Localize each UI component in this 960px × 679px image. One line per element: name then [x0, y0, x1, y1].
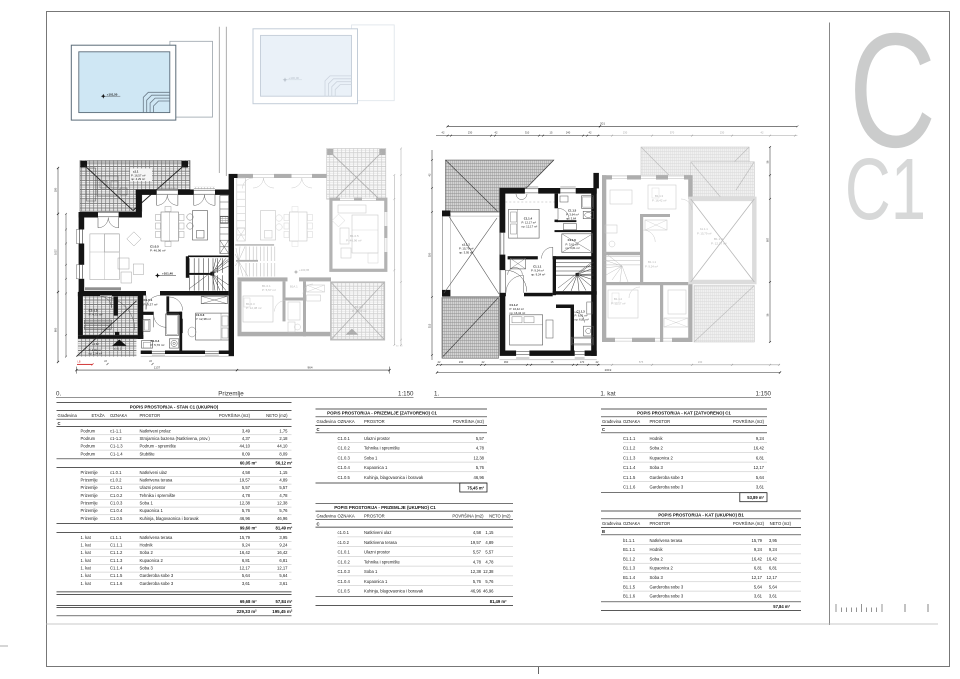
svg-text:1.: 1.: [434, 390, 439, 397]
svg-text:P: 12,17 m²: P: 12,17 m²: [611, 302, 626, 306]
svg-text:81,49 m²: 81,49 m²: [490, 599, 507, 604]
svg-text:57,84 m²: 57,84 m²: [276, 599, 293, 604]
svg-text:230: 230: [459, 360, 464, 364]
svg-text:4,37: 4,37: [242, 436, 251, 441]
svg-text:B1.1.2: B1.1.2: [614, 297, 623, 301]
svg-text:5,57: 5,57: [279, 485, 288, 490]
svg-text:1. kat: 1. kat: [600, 390, 615, 397]
svg-text:5,64: 5,64: [769, 584, 778, 589]
svg-text:Podrum - spremište: Podrum - spremište: [140, 444, 177, 449]
svg-text:3,61: 3,61: [756, 485, 765, 490]
svg-text:Kupaonica 2: Kupaonica 2: [140, 558, 164, 563]
svg-text:P: 19,57 m²: P: 19,57 m²: [352, 309, 367, 313]
svg-text:Tehnika i spremište: Tehnika i spremište: [364, 446, 401, 451]
svg-text:1,15: 1,15: [279, 470, 288, 475]
svg-text:c1-1.2: c1-1.2: [110, 436, 122, 441]
svg-text:np: 2,04 m²: np: 2,04 m²: [89, 351, 102, 355]
svg-text:6,81: 6,81: [242, 558, 251, 563]
svg-text:C1.1.4: C1.1.4: [110, 566, 123, 571]
svg-text:230: 230: [720, 131, 725, 135]
svg-text:LB: LB: [104, 360, 107, 363]
svg-text:np: 12,17 m²: np: 12,17 m²: [522, 224, 538, 228]
svg-text:c1.0.2: c1.0.2: [110, 478, 122, 483]
svg-text:PROSTOR: PROSTOR: [364, 514, 385, 519]
svg-text:C1.0.1: C1.0.1: [110, 485, 123, 490]
svg-text:Prizemlje: Prizemlje: [81, 493, 99, 498]
svg-text:+101,50: +101,50: [107, 92, 118, 96]
svg-text:Prizemlje: Prizemlje: [81, 501, 99, 506]
svg-text:195,45 m²: 195,45 m²: [272, 609, 293, 614]
svg-text:1137: 1137: [154, 365, 161, 369]
svg-text:Kupaonica 2: Kupaonica 2: [650, 566, 674, 571]
svg-text:575: 575: [639, 360, 644, 364]
svg-text:Kupaonica 2: Kupaonica 2: [650, 455, 674, 460]
svg-text:Prizemlje: Prizemlje: [81, 516, 99, 521]
svg-text:3,61: 3,61: [769, 594, 778, 599]
svg-text:Tehnika i spremište: Tehnika i spremište: [140, 493, 177, 498]
svg-text:Prizemlje: Prizemlje: [218, 390, 244, 397]
svg-text:230: 230: [698, 360, 703, 364]
svg-text:Tehnika i spremište: Tehnika i spremište: [364, 559, 401, 564]
svg-text:16,42: 16,42: [754, 446, 765, 451]
svg-text:b1.1.1: b1.1.1: [623, 538, 635, 543]
svg-text:201: 201: [600, 122, 605, 126]
svg-text:P: 16,42 m²: P: 16,42 m²: [652, 199, 667, 203]
svg-text:Hodnik: Hodnik: [650, 547, 664, 552]
svg-text:C1.1.5: C1.1.5: [623, 475, 636, 480]
svg-text:315: 315: [428, 323, 432, 328]
svg-text:B1.1.3: B1.1.3: [623, 566, 636, 571]
svg-text:57,84 m²: 57,84 m²: [773, 604, 790, 609]
svg-text:POPIS PROSTORIJA - STAN C1 (U: POPIS PROSTORIJA - STAN C1 (UKUPNO): [130, 404, 219, 409]
svg-text:OZNAKA: OZNAKA: [110, 413, 127, 418]
svg-text:C1.0.5: C1.0.5: [110, 516, 123, 521]
svg-text:12,38: 12,38: [240, 501, 251, 506]
svg-text:12,17: 12,17: [277, 566, 288, 571]
svg-text:46,96: 46,96: [471, 589, 482, 594]
svg-text:4,78: 4,78: [473, 559, 482, 564]
svg-text:P: 9,37 m²: P: 9,37 m²: [144, 302, 158, 306]
svg-text:350: 350: [428, 252, 432, 257]
svg-text:3,49: 3,49: [242, 428, 251, 433]
svg-text:180: 180: [54, 187, 58, 192]
svg-text:4,58: 4,58: [242, 470, 251, 475]
svg-text:75,45 m²: 75,45 m²: [467, 485, 484, 490]
svg-text:+1,62: +1,62: [92, 342, 99, 346]
svg-text:C1.0.4: C1.0.4: [338, 579, 351, 584]
svg-text:12,38: 12,38: [471, 569, 482, 574]
svg-text:PROSTOR: PROSTOR: [650, 419, 671, 424]
svg-text:5,76: 5,76: [473, 579, 482, 584]
svg-text:99,60 m²: 99,60 m²: [240, 526, 257, 531]
svg-text:OZNAKA: OZNAKA: [623, 419, 640, 424]
svg-text:P: 12,38 m²: P: 12,38 m²: [196, 317, 212, 321]
svg-text:B1.1.1: B1.1.1: [648, 260, 657, 264]
svg-text:Soba 3: Soba 3: [650, 465, 664, 470]
svg-text:B1.1.4: B1.1.4: [714, 237, 723, 241]
svg-text:Soba 2: Soba 2: [650, 556, 664, 561]
svg-text:5,57: 5,57: [485, 550, 494, 555]
svg-text:P: 5,76 m²: P: 5,76 m²: [151, 343, 165, 347]
svg-text:C1.1.3: C1.1.3: [110, 558, 123, 563]
svg-text:Ulazni prostor: Ulazni prostor: [140, 485, 166, 490]
svg-text:1. kat: 1. kat: [81, 558, 92, 563]
svg-text:B: B: [602, 529, 605, 534]
svg-text:6,81: 6,81: [756, 455, 765, 460]
svg-text:b1.1.1: b1.1.1: [700, 227, 708, 231]
svg-text:C1.0.2: C1.0.2: [338, 559, 351, 564]
svg-text:POPIS PROSTORIJA - PRIZEMLJE: POPIS PROSTORIJA - PRIZEMLJE (ZATVORENO)…: [327, 411, 437, 416]
svg-text:3,61: 3,61: [754, 594, 763, 599]
svg-text:Garderoba sobe 3: Garderoba sobe 3: [140, 581, 174, 586]
svg-text:5,57: 5,57: [242, 485, 251, 490]
svg-text:C1.1.2: C1.1.2: [623, 446, 636, 451]
svg-text:Soba 2: Soba 2: [140, 550, 154, 555]
svg-text:887: 887: [767, 237, 770, 242]
svg-text:OZNAKA: OZNAKA: [623, 521, 640, 526]
svg-text:1:150: 1:150: [398, 390, 414, 397]
svg-text:B1.1.6: B1.1.6: [623, 594, 636, 599]
svg-text:np: 4,29 m²: np: 4,29 m²: [131, 177, 145, 181]
svg-text:PROSTOR: PROSTOR: [650, 521, 671, 526]
svg-text:C1-1.3: C1-1.3: [110, 444, 123, 449]
svg-text:Garderoba sobe 3: Garderoba sobe 3: [650, 584, 684, 589]
svg-text:5,76: 5,76: [485, 579, 494, 584]
svg-text:1. kat: 1. kat: [81, 543, 92, 548]
svg-text:5,76: 5,76: [279, 508, 288, 513]
svg-text:16,42: 16,42: [752, 556, 763, 561]
svg-text:C1.1.1: C1.1.1: [110, 543, 123, 548]
svg-text:NETO (m2): NETO (m2): [770, 521, 792, 526]
svg-text:1. kat: 1. kat: [81, 566, 92, 571]
svg-text:np: 9,24 m²: np: 9,24 m²: [531, 272, 545, 276]
svg-text:12,17: 12,17: [754, 465, 765, 470]
svg-text:C: C: [317, 521, 320, 526]
svg-text:POPIS PROSTORIJA - PRIZEMLJE: POPIS PROSTORIJA - PRIZEMLJE (UKUPNO) C1: [334, 505, 436, 510]
svg-text:Stubište: Stubište: [140, 451, 156, 456]
svg-text:Garderoba sobe 3: Garderoba sobe 3: [650, 475, 684, 480]
svg-text:19,57: 19,57: [471, 540, 482, 545]
svg-text:2019: 2019: [605, 368, 612, 372]
svg-text:LB: LB: [78, 361, 81, 364]
svg-text:NETO (m2): NETO (m2): [489, 514, 511, 519]
svg-text:1,75: 1,75: [279, 428, 288, 433]
svg-text:Hodnik: Hodnik: [140, 543, 154, 548]
svg-text:Kuhinja, blagovaonica i borava: Kuhinja, blagovaonica i boravak: [140, 516, 200, 521]
svg-text:4,58: 4,58: [473, 530, 482, 535]
svg-text:230: 230: [623, 131, 628, 135]
svg-text:C1.1.6: C1.1.6: [110, 581, 123, 586]
svg-text:Prizemlje: Prizemlje: [81, 478, 99, 483]
svg-text:POVRŠINA (m2): POVRŠINA (m2): [452, 514, 484, 519]
svg-text:C1.0.1: C1.0.1: [338, 550, 351, 555]
svg-text:P: 5,57 m²: P: 5,57 m²: [262, 288, 276, 292]
svg-text:Natkrivena terasa: Natkrivena terasa: [364, 540, 397, 545]
svg-text:9,24: 9,24: [279, 543, 288, 548]
svg-text:Podrum: Podrum: [81, 436, 96, 441]
svg-text:P: 15,79 m²: P: 15,79 m²: [697, 232, 712, 236]
svg-text:c1.0.2: c1.0.2: [338, 540, 350, 545]
svg-text:4,78: 4,78: [242, 493, 251, 498]
svg-text:3,95: 3,95: [769, 538, 778, 543]
svg-text:C1.1.1: C1.1.1: [623, 436, 636, 441]
svg-text:Građevina: Građevina: [317, 514, 337, 519]
svg-text:C1.1.6: C1.1.6: [623, 485, 636, 490]
svg-text:3,61: 3,61: [242, 581, 251, 586]
svg-text:POVRŠINA (m2): POVRŠINA (m2): [453, 419, 485, 424]
svg-text:OZNAKA: OZNAKA: [338, 514, 355, 519]
svg-text:B1.0.5: B1.0.5: [350, 234, 359, 238]
svg-text:6,81: 6,81: [279, 558, 288, 563]
svg-text:12,17: 12,17: [752, 575, 763, 580]
svg-text:B1A.1: B1A.1: [290, 285, 298, 289]
svg-text:c1-1.1: c1-1.1: [110, 428, 122, 433]
svg-text:360: 360: [504, 360, 509, 364]
svg-text:Soba 1: Soba 1: [364, 569, 378, 574]
svg-text:C1-1.4: C1-1.4: [110, 451, 123, 456]
svg-text:5,57: 5,57: [473, 550, 482, 555]
svg-text:POVRŠINA (m2): POVRŠINA (m2): [733, 419, 765, 424]
svg-text:Građevina: Građevina: [602, 521, 622, 526]
svg-text:9,24: 9,24: [769, 547, 778, 552]
svg-text:69,68 m²: 69,68 m²: [240, 599, 257, 604]
svg-text:Kuhinja, blagovaonica i borava: Kuhinja, blagovaonica i boravak: [364, 475, 424, 480]
svg-text:6,81: 6,81: [769, 566, 778, 571]
svg-text:B1.1.1: B1.1.1: [623, 547, 636, 552]
svg-text:5,76: 5,76: [242, 508, 251, 513]
svg-text:6,81: 6,81: [754, 566, 763, 571]
svg-text:C1.0.3: C1.0.3: [338, 569, 351, 574]
svg-text:B1.1.5: B1.1.5: [623, 584, 636, 589]
svg-text:Građevina: Građevina: [58, 413, 78, 418]
svg-text:C: C: [317, 427, 320, 432]
svg-text:Strojarnica bazena (Natkrivena: Strojarnica bazena (Natkrivena, prov.): [140, 436, 211, 441]
svg-text:B1.1.2: B1.1.2: [623, 556, 636, 561]
svg-text:np: 3,64: np: 3,64: [566, 216, 577, 220]
svg-text:P: 4,75 m²: P: 4,75 m²: [89, 313, 103, 317]
svg-text:+101,40: +101,40: [162, 271, 173, 275]
svg-text:60,05 m²: 60,05 m²: [240, 461, 257, 466]
svg-text:5,64: 5,64: [756, 475, 765, 480]
svg-text:c1.0.1: c1.0.1: [110, 470, 122, 475]
svg-text:1. kat: 1. kat: [81, 550, 92, 555]
svg-text:C: C: [602, 427, 605, 432]
svg-text:LB: LB: [149, 360, 152, 363]
svg-text:16,42: 16,42: [767, 556, 778, 561]
svg-text:Soba 3: Soba 3: [140, 566, 154, 571]
svg-text:15,79: 15,79: [752, 538, 763, 543]
svg-text:3,61: 3,61: [279, 581, 288, 586]
svg-text:4,89: 4,89: [485, 540, 494, 545]
svg-text:C1.0.2: C1.0.2: [338, 446, 351, 451]
svg-text:0.: 0.: [56, 390, 61, 397]
svg-text:12,17: 12,17: [767, 575, 778, 580]
svg-text:Garderoba sobe 3: Garderoba sobe 3: [140, 573, 174, 578]
svg-text:9,24: 9,24: [242, 543, 251, 548]
svg-text:44,10: 44,10: [277, 444, 288, 449]
svg-text:570: 570: [670, 131, 675, 135]
svg-text:P: 9,24 m²: P: 9,24 m²: [645, 265, 658, 269]
svg-text:4,78: 4,78: [476, 446, 485, 451]
svg-text:16,42: 16,42: [277, 550, 288, 555]
svg-text:Podrum: Podrum: [81, 428, 96, 433]
svg-text:4,78: 4,78: [279, 493, 288, 498]
svg-text:1:150: 1:150: [756, 390, 772, 397]
svg-text:c1.1.1: c1.1.1: [110, 535, 122, 540]
svg-text:5,64: 5,64: [242, 573, 251, 578]
svg-text:170: 170: [580, 360, 585, 364]
svg-text:P: 46,96 m²: P: 46,96 m²: [150, 249, 166, 253]
svg-text:C1.0.5: C1.0.5: [338, 589, 351, 594]
svg-text:ETAŽA: ETAŽA: [92, 413, 105, 418]
svg-text:240: 240: [566, 131, 571, 135]
svg-text:np: 16,42 m²: np: 16,42 m²: [510, 311, 526, 315]
svg-text:OZNAKA: OZNAKA: [338, 419, 355, 424]
svg-text:C1.1.4: C1.1.4: [623, 465, 636, 470]
svg-text:Ulazni prostor: Ulazni prostor: [364, 436, 390, 441]
svg-text:+100,95: +100,95: [299, 268, 310, 272]
svg-text:46,96: 46,96: [483, 589, 494, 594]
svg-text:C1.0.2: C1.0.2: [110, 493, 123, 498]
svg-text:B1.1.3: B1.1.3: [655, 194, 664, 198]
svg-text:Građevina: Građevina: [602, 419, 622, 424]
svg-text:5,64: 5,64: [754, 584, 763, 589]
svg-text:P: 4,09 m²: P: 4,09 m²: [89, 348, 101, 352]
svg-text:C1.1.5: C1.1.5: [110, 573, 123, 578]
svg-text:16,42: 16,42: [240, 550, 251, 555]
svg-text:C: C: [58, 421, 61, 426]
svg-text:np: 3,61 m²: np: 3,61 m²: [566, 246, 580, 250]
svg-text:12,17: 12,17: [240, 566, 251, 571]
svg-text:15,79: 15,79: [240, 535, 251, 540]
svg-text:C1.1.3: C1.1.3: [623, 455, 636, 460]
svg-text:POVRŠINA (m2): POVRŠINA (m2): [219, 413, 251, 418]
svg-text:Natkriveni ulaz: Natkriveni ulaz: [364, 530, 391, 535]
svg-text:1. kat: 1. kat: [81, 581, 92, 586]
svg-text:C1.0.4: C1.0.4: [338, 465, 351, 470]
svg-text:964: 964: [307, 365, 312, 369]
svg-text:Soba 2: Soba 2: [650, 446, 664, 451]
svg-text:+100,00: +100,00: [289, 76, 300, 80]
svg-text:Natkriveni ulaz: Natkriveni ulaz: [140, 470, 167, 475]
svg-text:Kupaonica 1: Kupaonica 1: [364, 579, 388, 584]
svg-text:Soba 1: Soba 1: [364, 455, 378, 460]
svg-text:8,09: 8,09: [242, 451, 251, 456]
svg-text:12,38: 12,38: [277, 501, 288, 506]
svg-text:Kuhinja, blagovaonica i borava: Kuhinja, blagovaonica i boravak: [364, 589, 424, 594]
svg-text:PROSTOR: PROSTOR: [364, 419, 385, 424]
svg-text:Garderoba sobe 3: Garderoba sobe 3: [650, 485, 684, 490]
svg-text:Soba 1: Soba 1: [140, 501, 154, 506]
svg-text:C1.0.3: C1.0.3: [110, 501, 123, 506]
svg-text:c1.0.1: c1.0.1: [338, 530, 350, 535]
svg-text:5,57: 5,57: [476, 436, 485, 441]
svg-text:5,64: 5,64: [279, 573, 288, 578]
svg-text:1057: 1057: [54, 249, 58, 255]
svg-text:46,96: 46,96: [240, 516, 251, 521]
svg-text:Prizemlje: Prizemlje: [81, 470, 99, 475]
svg-text:NETO (m2): NETO (m2): [266, 413, 288, 418]
svg-text:2,18: 2,18: [279, 436, 288, 441]
svg-text:Podrum: Podrum: [81, 444, 96, 449]
svg-text:C1.0.3: C1.0.3: [338, 455, 351, 460]
svg-text:5,76: 5,76: [476, 465, 485, 470]
svg-text:229,33 m²: 229,33 m²: [237, 609, 258, 614]
svg-text:4,89: 4,89: [279, 478, 288, 483]
svg-text:12,38: 12,38: [483, 569, 494, 574]
svg-text:Kupaonica 1: Kupaonica 1: [140, 508, 164, 513]
svg-text:c1-1.1: c1-1.1: [114, 346, 122, 350]
svg-text:44,10: 44,10: [240, 444, 251, 449]
svg-text:1. kat: 1. kat: [81, 573, 92, 578]
svg-text:C1.0.1: C1.0.1: [338, 436, 351, 441]
svg-text:C1: C1: [845, 141, 926, 238]
svg-text:Građevina: Građevina: [317, 419, 337, 424]
svg-text:19,57: 19,57: [240, 478, 251, 483]
svg-text:46,96: 46,96: [277, 516, 288, 521]
svg-text:POPIS PROSTORIJA - KAT (ZATVO: POPIS PROSTORIJA - KAT (ZATVORENO) C1: [637, 411, 731, 416]
svg-text:3,95: 3,95: [279, 535, 288, 540]
svg-text:P: 12,17 m²: P: 12,17 m²: [711, 242, 727, 246]
svg-text:POVRŠINA (m2): POVRŠINA (m2): [733, 521, 765, 526]
svg-text:Garderoba sobe 3: Garderoba sobe 3: [650, 594, 684, 599]
svg-text:P: 12,38 m²: P: 12,38 m²: [246, 306, 262, 310]
svg-text:53,89 m²: 53,89 m²: [747, 495, 764, 500]
svg-text:B1.1.4: B1.1.4: [623, 575, 636, 580]
svg-text:Ulazni prostor: Ulazni prostor: [364, 550, 390, 555]
svg-text:81,49 m²: 81,49 m²: [276, 526, 293, 531]
svg-text:C1.0.5: C1.0.5: [338, 475, 351, 480]
svg-text:9,24: 9,24: [754, 547, 763, 552]
svg-text:4,78: 4,78: [485, 559, 494, 564]
svg-text:Natkrivena terasa: Natkrivena terasa: [140, 478, 173, 483]
svg-text:46,96: 46,96: [474, 475, 485, 480]
svg-text:310: 310: [525, 131, 530, 135]
svg-text:Soba 3: Soba 3: [650, 575, 664, 580]
svg-text:PROSTOR: PROSTOR: [140, 413, 161, 418]
svg-text:Prizemlje: Prizemlje: [81, 508, 99, 513]
svg-text:np: 6,81 m²: np: 6,81 m²: [575, 317, 589, 321]
svg-text:Natkrivena terasa: Natkrivena terasa: [140, 535, 173, 540]
svg-text:56,12 m²: 56,12 m²: [276, 461, 293, 466]
svg-text:9,24: 9,24: [756, 436, 765, 441]
svg-text:Kupaonica 1: Kupaonica 1: [364, 465, 388, 470]
svg-text:P: 46,96 m²: P: 46,96 m²: [346, 239, 362, 243]
svg-text:1,15: 1,15: [485, 530, 494, 535]
svg-text:np: 3,95 m²: np: 3,95 m²: [459, 250, 473, 254]
svg-text:Natkriveni prolaz: Natkriveni prolaz: [140, 428, 171, 433]
svg-text:230: 230: [468, 131, 473, 135]
svg-text:Podrum: Podrum: [81, 451, 96, 456]
svg-text:8,09: 8,09: [279, 451, 288, 456]
svg-text:Hodnik: Hodnik: [650, 436, 664, 441]
svg-text:C1.1.2: C1.1.2: [110, 550, 123, 555]
svg-text:12,38: 12,38: [474, 455, 485, 460]
svg-text:Prizemlje: Prizemlje: [81, 485, 99, 490]
svg-text:660: 660: [54, 327, 58, 332]
svg-text:POPIS PROSTORIJA - KAT (UKUPN: POPIS PROSTORIJA - KAT (UKUPNO) B1: [658, 513, 744, 518]
svg-text:C1.0.4: C1.0.4: [110, 508, 123, 513]
svg-text:Natkrivena terasa: Natkrivena terasa: [650, 538, 683, 543]
svg-text:1. kat: 1. kat: [81, 535, 92, 540]
